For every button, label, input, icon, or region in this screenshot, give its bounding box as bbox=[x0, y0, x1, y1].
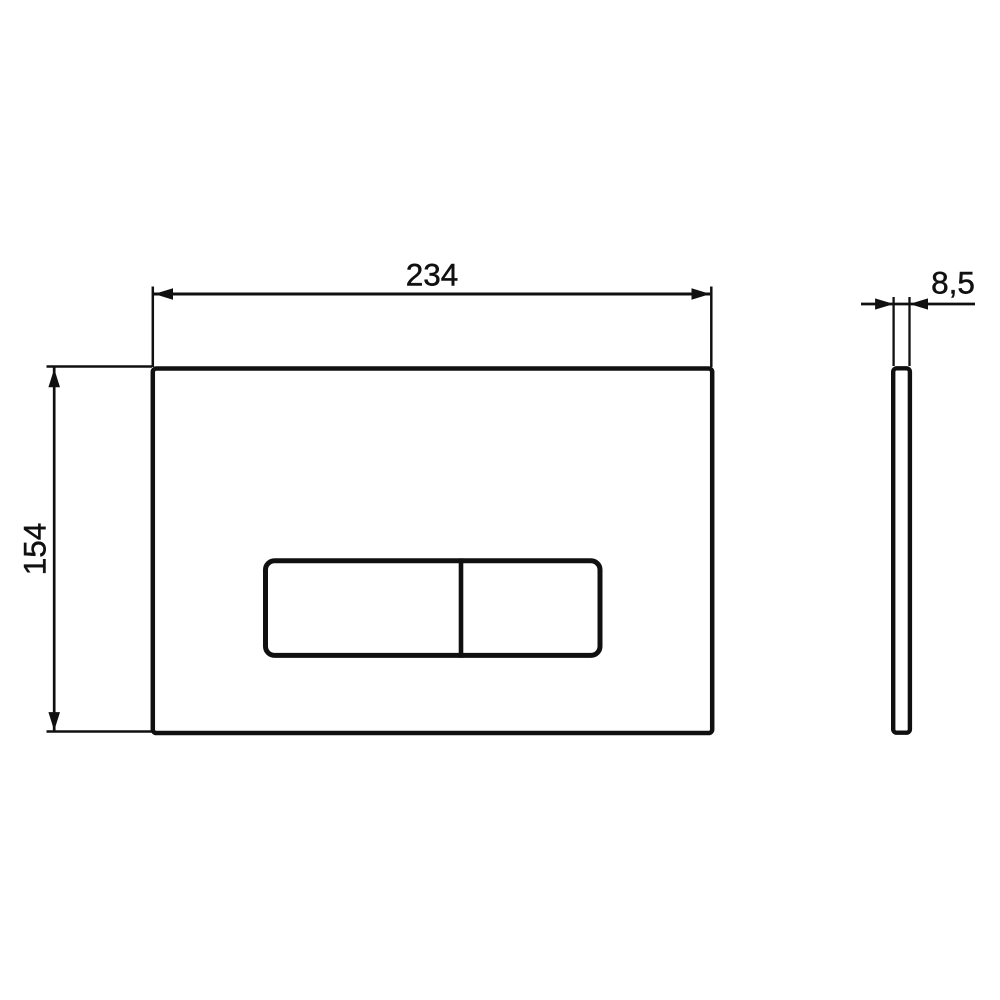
svg-text:234: 234 bbox=[406, 257, 459, 293]
svg-text:154: 154 bbox=[17, 523, 53, 576]
svg-text:8,5: 8,5 bbox=[931, 265, 975, 301]
